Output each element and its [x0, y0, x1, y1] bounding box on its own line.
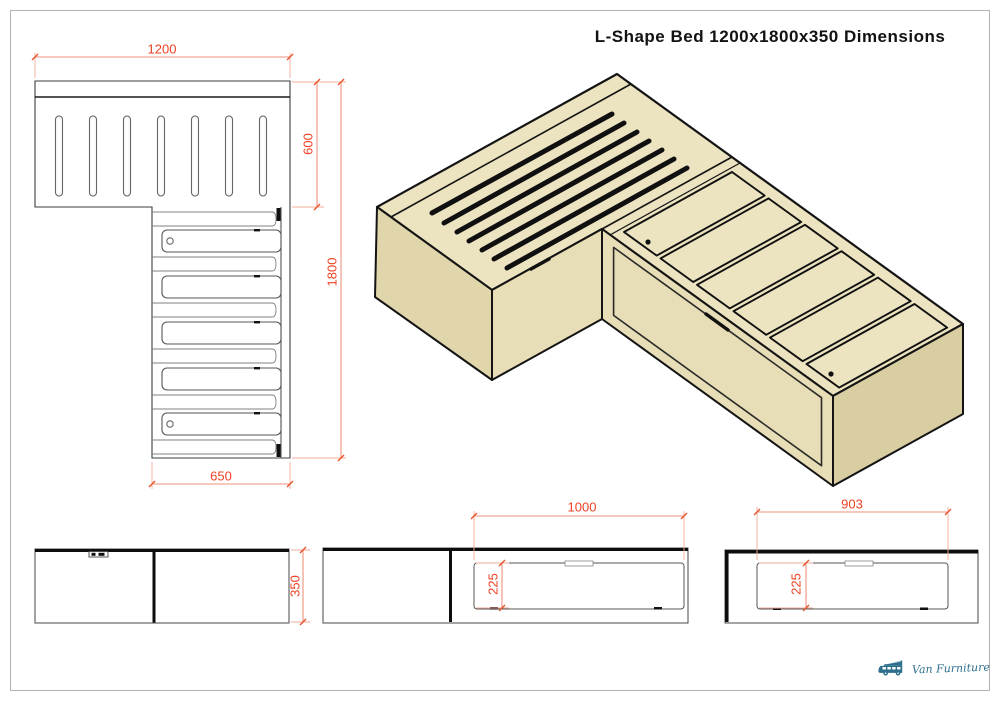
brand-logo: Van Furniture [878, 648, 990, 688]
page-title: L-Shape Bed 1200x1800x350 Dimensions [595, 27, 946, 47]
dim-label-long-drawer-height: 225 [487, 573, 500, 595]
drawing-sheet: L-Shape Bed 1200x1800x350 Dimensions 120… [0, 0, 1000, 705]
isometric-view [375, 74, 963, 486]
head-elevation-handle-notch [845, 561, 873, 566]
van-icon [878, 654, 907, 682]
iso-panel-hole-first [645, 239, 650, 244]
dim-label-plan-length: 1800 [326, 258, 339, 287]
long-elevation-handle-notch [565, 561, 593, 566]
long-side-elevation [323, 548, 688, 623]
dim-label-plan-width: 1200 [148, 43, 177, 56]
iso-panel-hole-last [828, 371, 833, 376]
drawing-canvas [0, 0, 1000, 705]
dim-label-long-drawer-width: 1000 [568, 501, 597, 514]
front-elevation [35, 549, 289, 623]
head-side-elevation [725, 550, 978, 623]
long-elevation-outline [323, 548, 688, 623]
dim-label-plan-section-width: 650 [210, 470, 232, 483]
front-elevation-outline [35, 549, 289, 623]
brand-name: Van Furniture [912, 660, 990, 676]
dim-label-head-drawer-width: 903 [841, 498, 863, 511]
dim-label-plan-headboard-depth: 600 [302, 133, 315, 155]
plan-view [35, 81, 290, 458]
dim-label-head-drawer-height: 225 [790, 573, 803, 595]
dim-label-front-height: 350 [289, 575, 302, 597]
